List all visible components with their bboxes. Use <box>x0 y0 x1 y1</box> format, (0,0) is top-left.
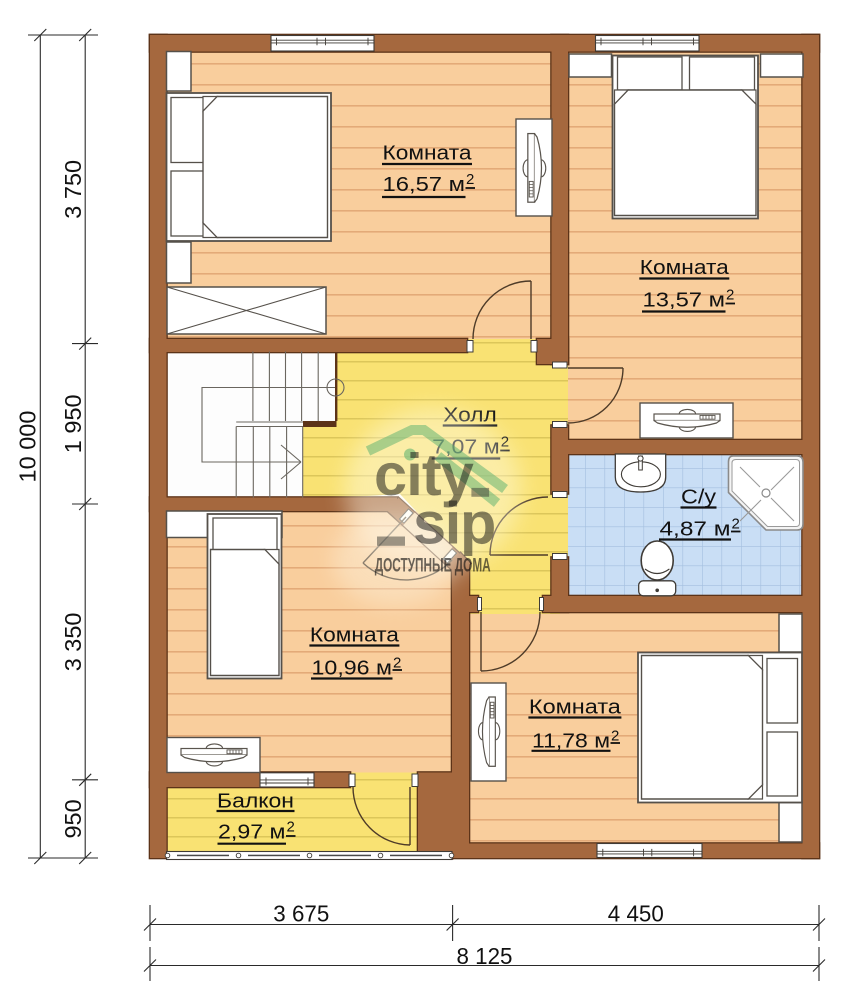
svg-text:8 125: 8 125 <box>457 943 513 969</box>
svg-text:950: 950 <box>60 799 86 838</box>
svg-text:Балкон: Балкон <box>217 789 294 812</box>
svg-text:2: 2 <box>393 654 401 671</box>
svg-text:Комната: Комната <box>529 696 622 719</box>
svg-text:2: 2 <box>726 287 734 304</box>
svg-text:2,97 м: 2,97 м <box>218 821 286 844</box>
svg-text:3 350: 3 350 <box>60 612 86 671</box>
svg-text:1 950: 1 950 <box>60 394 86 453</box>
svg-text:2: 2 <box>732 516 740 533</box>
svg-text:10 000: 10 000 <box>15 411 41 483</box>
svg-text:Комната: Комната <box>383 142 473 165</box>
svg-text:ДОСТУПНЫЕ ДОМА: ДОСТУПНЫЕ ДОМА <box>375 556 491 577</box>
svg-text:11,78 м: 11,78 м <box>532 729 610 752</box>
svg-text:2: 2 <box>466 171 474 188</box>
svg-text:10,96 м: 10,96 м <box>312 656 393 679</box>
svg-text:С/у: С/у <box>681 486 717 509</box>
svg-text:3 675: 3 675 <box>273 901 329 927</box>
svg-text:2: 2 <box>287 819 295 836</box>
svg-text:3 750: 3 750 <box>60 160 86 219</box>
svg-text:16,57 м: 16,57 м <box>383 173 466 196</box>
svg-text:13,57 м: 13,57 м <box>643 289 726 312</box>
svg-text:sip: sip <box>413 490 495 557</box>
svg-text:4,87 м: 4,87 м <box>660 518 731 541</box>
svg-text:Комната: Комната <box>640 256 730 279</box>
svg-text:2: 2 <box>611 727 619 744</box>
svg-text:Комната: Комната <box>310 624 400 647</box>
svg-text:4 450: 4 450 <box>608 901 664 927</box>
